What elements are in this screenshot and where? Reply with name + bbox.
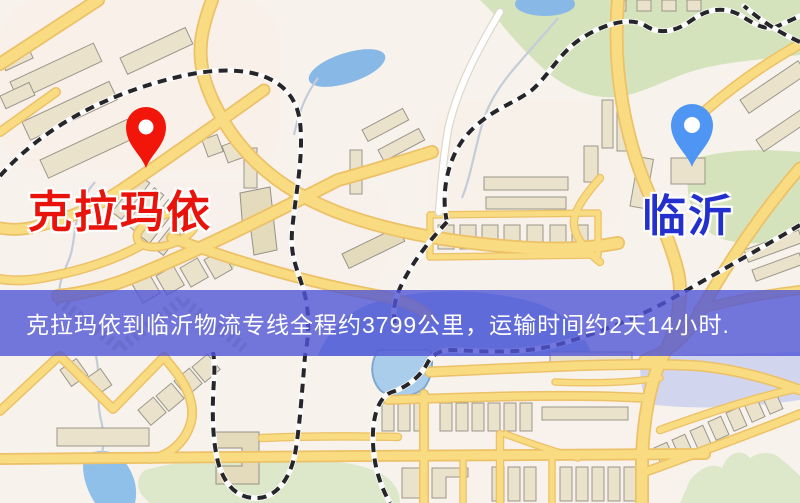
destination-pin-icon [668,103,716,167]
origin-pin-icon [123,106,169,168]
destination-pin[interactable] [668,103,716,167]
origin-pin[interactable] [123,106,169,168]
map-canvas[interactable] [0,0,800,503]
route-info-text: 克拉玛依到临沂物流专线全程约3799公里，运输时间约2天14小时. [26,306,730,340]
route-info-banner: 克拉玛依到临沂物流专线全程约3799公里，运输时间约2天14小时. [0,290,800,356]
origin-label: 克拉玛依 [28,176,212,240]
map-view[interactable]: 克拉玛依到临沂物流专线全程约3799公里，运输时间约2天14小时. 克拉玛依 临… [0,0,800,503]
destination-label: 临沂 [642,180,734,244]
